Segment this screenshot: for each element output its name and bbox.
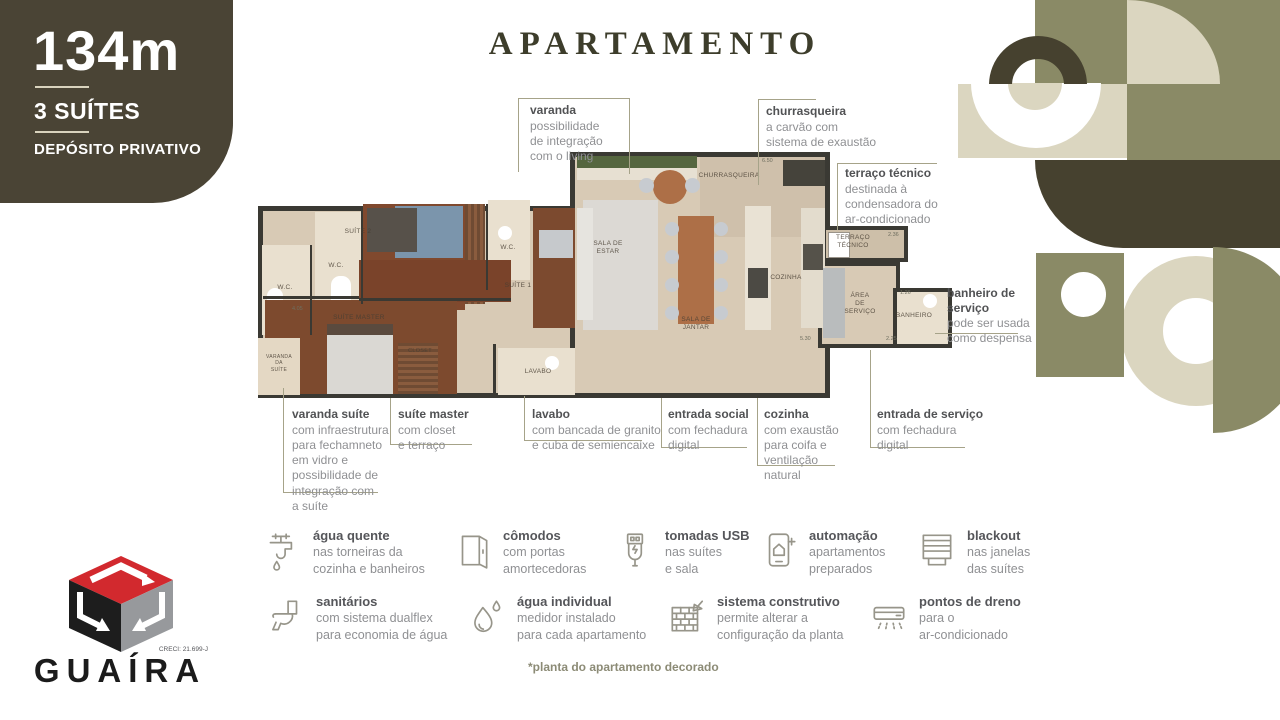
chair [665,278,679,292]
feature-title: sanitários [316,594,447,610]
headboard [327,324,393,335]
apartment-flyer: 134m 3 SUÍTES DEPÓSITO PRIVATIVO APARTAM… [0,0,1280,720]
feature-text: pontos de dreno para o ar-condicionado [919,594,1021,643]
feature-text: sistema construtivo permite alterar a co… [717,594,843,643]
callout-desc: com bancada de granito e cuba de semienc… [532,423,667,453]
area-badge: 134m 3 SUÍTES DEPÓSITO PRIVATIVO [0,0,233,203]
chair [685,178,700,193]
feature-text: automação apartamentos preparados [809,528,885,577]
callout-title: terraço técnico [845,166,960,181]
smart-home-icon [758,528,800,572]
guaira-logo-cube [58,554,184,652]
feature-text: blackout nas janelas das suítes [967,528,1030,577]
chair [665,250,679,264]
room-label: W.C. [270,284,300,292]
blinds-icon [916,528,958,572]
water-drop-icon [466,594,508,638]
callout-varanda: varanda possibilidade de integração com … [530,103,625,164]
callout-title: varanda suíte [292,407,397,422]
sofa [577,208,593,320]
callout-lavabo: lavabo com bancada de granito e cuba de … [532,407,667,453]
feature-desc: permite alterar a configuração da planta [717,610,843,643]
dimension-label: 2.36 [888,232,899,238]
deco-dark-band [1035,160,1280,248]
page-title: APARTAMENTO [455,26,855,63]
deco-olive-rect [1127,84,1280,160]
callout-title: churrasqueira [766,104,896,119]
room-label: SALA DE JANTAR [676,316,716,332]
feature-sistema-construtivo: sistema construtivo permite alterar a co… [666,594,843,643]
room-label: TERRAÇO TÉCNICO [828,234,878,250]
leader-line [518,98,630,99]
callout-desc: com exaustão para coifa e ventilação nat… [764,423,849,484]
chair [639,178,654,193]
leader-line [518,98,519,172]
toilet-icon [265,594,307,638]
wall [263,296,359,299]
room-label: LAVABO [518,368,558,376]
feature-title: automação [809,528,885,544]
usb-plug-icon [614,528,656,572]
deco-olive-halfdisc [1213,247,1280,433]
callout-desc: com fechadura digital [877,423,992,453]
brick-wall-icon [666,594,708,638]
brand-name: GUAÍRA [22,652,218,690]
cooktop [748,268,768,298]
callout-title: entrada social [668,407,763,422]
leader-line [837,163,937,164]
chair [714,222,728,236]
leader-line [283,388,284,492]
room-label: ÁREA DE SERVIÇO [840,292,880,316]
toilet [923,294,937,308]
dimension-label: 5.30 [800,336,811,342]
feature-automacao: automação apartamentos preparados [758,528,885,577]
leader-line [524,396,525,440]
feature-title: blackout [967,528,1030,544]
fridge [803,244,823,270]
chair [714,250,728,264]
feature-desc: com sistema dualflex para economia de ág… [316,610,447,643]
room-label: VARANDA DA SUÍTE [258,354,300,373]
feature-title: água individual [517,594,646,610]
callout-title: suíte master [398,407,483,422]
feature-text: tomadas USB nas suítes e sala [665,528,750,577]
badge-divider [35,131,89,133]
callout-cozinha: cozinha com exaustão para coifa e ventil… [764,407,849,484]
room-label: W.C. [321,262,351,270]
deco-dark-ring [989,36,1087,84]
callout-suite-master: suíte master com closet e terraço [398,407,483,453]
feature-desc: nas janelas das suítes [967,544,1030,577]
leader-line [629,98,630,174]
wall [493,344,496,394]
living-rug [583,200,658,330]
feature-sanitarios: sanitários com sistema dualflex para eco… [265,594,447,643]
room-label: SALA DE ESTAR [588,240,628,256]
callout-banheiro-servico: banheiro de serviço pode ser usada como … [947,286,1037,347]
leader-line [758,99,759,185]
feature-agua-quente: água quente nas torneiras da cozinha e b… [262,528,425,577]
feature-text: água quente nas torneiras da cozinha e b… [313,528,425,577]
feature-pontos-dreno: pontos de dreno para o ar-condicionado [868,594,1021,643]
area-value: 134m [33,18,180,83]
chair [665,222,679,236]
chair [714,306,728,320]
callout-terraco-tecnico: terraço técnico destinada à condensadora… [845,166,960,227]
dimension-label: 4.05 [292,306,303,312]
feature-blackout: blackout nas janelas das suítes [916,528,1030,577]
callout-desc: com infraestrutura para fechamneto em vi… [292,423,397,514]
dimension-label: 2.25 [886,336,897,342]
feature-text: cômodos com portas amortecedoras [503,528,586,577]
callout-desc: destinada à condensadora do ar-condicion… [845,182,960,228]
suite1-desk [539,230,573,258]
hall-floor [359,260,511,302]
deposit-label: DEPÓSITO PRIVATIVO [34,141,201,158]
callout-desc: pode ser usada como despensa [947,316,1037,346]
room-label: CHURRASQUEIRA [697,172,761,180]
feature-comodos: cômodos com portas amortecedoras [452,528,586,577]
wall [361,208,363,304]
dimension-label: 6.50 [762,158,773,164]
callout-desc: a carvão com sistema de exaustão [766,120,896,150]
room-label: SUÍTE MASTER [327,314,391,322]
feature-tomadas-usb: tomadas USB nas suítes e sala [614,528,750,577]
wall [310,245,312,335]
feature-desc: nas suítes e sala [665,544,750,577]
callout-desc: com closet e terraço [398,423,483,453]
room-label: BANHEIRO [894,312,934,320]
churrasqueira-counter [783,160,825,186]
feature-desc: nas torneiras da cozinha e banheiros [313,544,425,577]
feature-desc: para o ar-condicionado [919,610,1021,643]
callout-title: lavabo [532,407,667,422]
feature-desc: medidor instalado para cada apartamento [517,610,646,643]
room-label: CLOSET [400,348,440,355]
badge-divider [35,86,89,88]
chair [714,278,728,292]
room-label: W.C. [493,244,523,252]
callout-title: entrada de serviço [877,407,992,422]
room-label: COZINHA [766,274,806,282]
feature-title: sistema construtivo [717,594,843,610]
suites-count: 3 SUÍTES [34,98,140,125]
feature-title: cômodos [503,528,586,544]
callout-entrada-social: entrada social com fechadura digital [668,407,763,453]
feature-title: pontos de dreno [919,594,1021,610]
callout-churrasqueira: churrasqueira a carvão com sistema de ex… [766,104,896,150]
room-label: SUÍTE 2 [338,228,378,236]
door-icon [452,528,494,572]
leader-line [870,350,871,447]
feature-text: sanitários com sistema dualflex para eco… [316,594,447,643]
callout-varanda-suite: varanda suíte com infraestrutura para fe… [292,407,397,514]
feature-desc: com portas amortecedoras [503,544,586,577]
wall [486,204,488,290]
callout-entrada-servico: entrada de serviço com fechadura digital [877,407,992,453]
footnote: *planta do apartamento decorado [528,660,719,674]
deco-white-dot [1061,272,1106,317]
dimension-label: 1.26 [900,290,911,296]
faucet-icon [262,528,304,572]
callout-title: banheiro de serviço [947,286,1037,315]
wall [359,298,511,301]
room-label: SUÍTE 1 [498,282,538,290]
round-table [653,170,687,204]
callout-desc: com fechadura digital [668,423,763,453]
feature-title: água quente [313,528,425,544]
feature-desc: apartamentos preparados [809,544,885,577]
air-conditioner-icon [868,594,910,638]
suite1-floor [533,208,575,328]
toilet [498,226,512,240]
callout-title: varanda [530,103,625,118]
leader-line [837,163,838,230]
callout-title: cozinha [764,407,849,422]
callout-desc: possibilidade de integração com o living [530,119,625,165]
feature-agua-individual: água individual medidor instalado para c… [466,594,646,643]
leader-line [758,99,816,100]
dining-table [678,216,714,324]
feature-text: água individual medidor instalado para c… [517,594,646,643]
feature-title: tomadas USB [665,528,750,544]
